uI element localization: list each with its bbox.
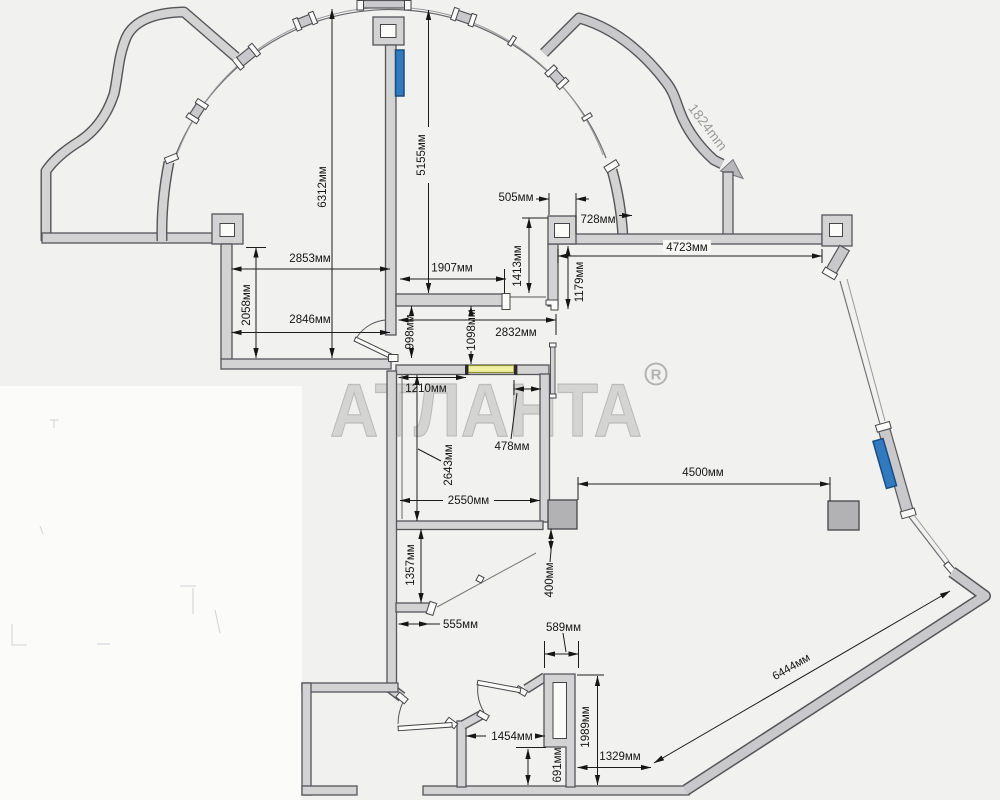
svg-text:728мм: 728мм <box>581 214 616 226</box>
svg-text:1210мм: 1210мм <box>405 383 446 395</box>
svg-text:2550мм: 2550мм <box>448 495 489 507</box>
svg-text:1907мм: 1907мм <box>431 263 472 275</box>
svg-text:1179мм: 1179мм <box>574 262 586 303</box>
svg-text:АТЛАНТА: АТЛАНТА <box>330 368 642 452</box>
svg-text:1357мм: 1357мм <box>405 544 417 585</box>
svg-text:691мм: 691мм <box>552 747 564 782</box>
svg-text:478мм: 478мм <box>495 441 530 453</box>
svg-text:6312мм: 6312мм <box>317 166 329 207</box>
svg-text:2832мм: 2832мм <box>495 327 536 339</box>
svg-text:998мм: 998мм <box>405 314 417 349</box>
svg-text:1989мм: 1989мм <box>580 706 592 747</box>
svg-text:2643мм: 2643мм <box>443 444 455 485</box>
svg-text:4723мм: 4723мм <box>666 242 707 254</box>
svg-text:R: R <box>651 367 662 384</box>
svg-text:2853мм: 2853мм <box>289 253 330 265</box>
svg-text:1098мм: 1098мм <box>466 309 478 350</box>
svg-text:1454мм: 1454мм <box>491 731 532 743</box>
svg-text:4500мм: 4500мм <box>682 467 723 479</box>
svg-text:400мм: 400мм <box>544 562 556 597</box>
svg-text:2058мм: 2058мм <box>241 284 253 325</box>
svg-text:505мм: 505мм <box>499 192 534 204</box>
svg-text:1413мм: 1413мм <box>512 245 524 286</box>
svg-text:555мм: 555мм <box>443 619 478 631</box>
svg-text:2846мм: 2846мм <box>289 314 330 326</box>
svg-text:589мм: 589мм <box>546 622 581 634</box>
svg-text:5155мм: 5155мм <box>416 134 428 175</box>
svg-text:1329мм: 1329мм <box>599 751 640 763</box>
